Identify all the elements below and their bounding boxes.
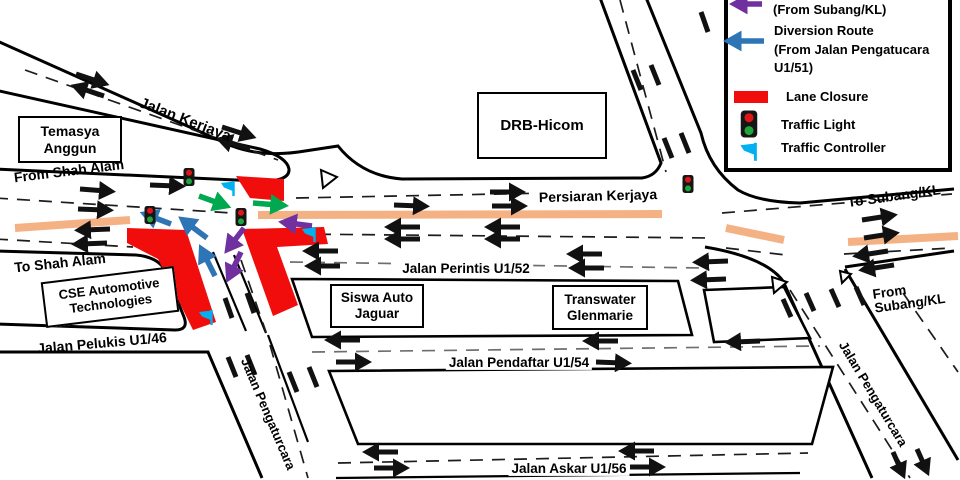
place-box-temasya-anggun: Temasya Anggun [18, 116, 122, 163]
place-box-siswa-auto-jaguar: Siswa Auto Jaguar [330, 284, 424, 328]
map-canvas [0, 0, 960, 480]
place-label: Siswa Auto [341, 290, 413, 306]
place-box-drb-hicom: DRB-Hicom [477, 92, 607, 159]
road-label-persiaran-kerjaya: Persiaran Kerjaya [536, 187, 661, 205]
place-label: Jaguar [355, 306, 399, 322]
traffic-light-icon [184, 168, 195, 186]
traffic-light-icon [236, 208, 247, 226]
place-box-transwater-glenmarie: Transwater Glenmarie [552, 285, 648, 330]
legend-traffic-light-icon [741, 111, 758, 138]
place-label: Anggun [44, 140, 97, 156]
legend-text-traffic-light: Traffic Light [781, 117, 855, 132]
legend-text-from-pengatucara: (From Jalan Pengatucara [774, 42, 929, 57]
flag-icon [221, 181, 235, 196]
traffic-light-icon [683, 175, 694, 193]
road-label-jalan-perintis: Jalan Perintis U1/52 [399, 262, 533, 276]
place-label: Transwater [564, 292, 635, 308]
place-label: Glenmarie [567, 308, 633, 324]
traffic-diversion-map: Temasya Anggun DRB-Hicom CSE Automotive … [0, 0, 960, 480]
legend-text-diversion-route: Diversion Route [774, 23, 874, 38]
road-label-jalan-askar: Jalan Askar U1/56 [508, 462, 629, 476]
place-label: Temasya [41, 123, 100, 139]
legend-text-lane-closure: Lane Closure [786, 89, 868, 104]
legend-text-from-subang: (From Subang/KL) [773, 2, 886, 17]
place-label: DRB-Hicom [500, 117, 583, 134]
legend-text-u151: U1/51) [774, 60, 813, 75]
traffic-light-icon [145, 206, 156, 224]
legend-lane-closure-bar-icon [734, 91, 768, 103]
legend-text-traffic-controller: Traffic Controller [781, 140, 886, 155]
road-label-jalan-pendaftar: Jalan Pendaftar U1/54 [446, 356, 592, 370]
